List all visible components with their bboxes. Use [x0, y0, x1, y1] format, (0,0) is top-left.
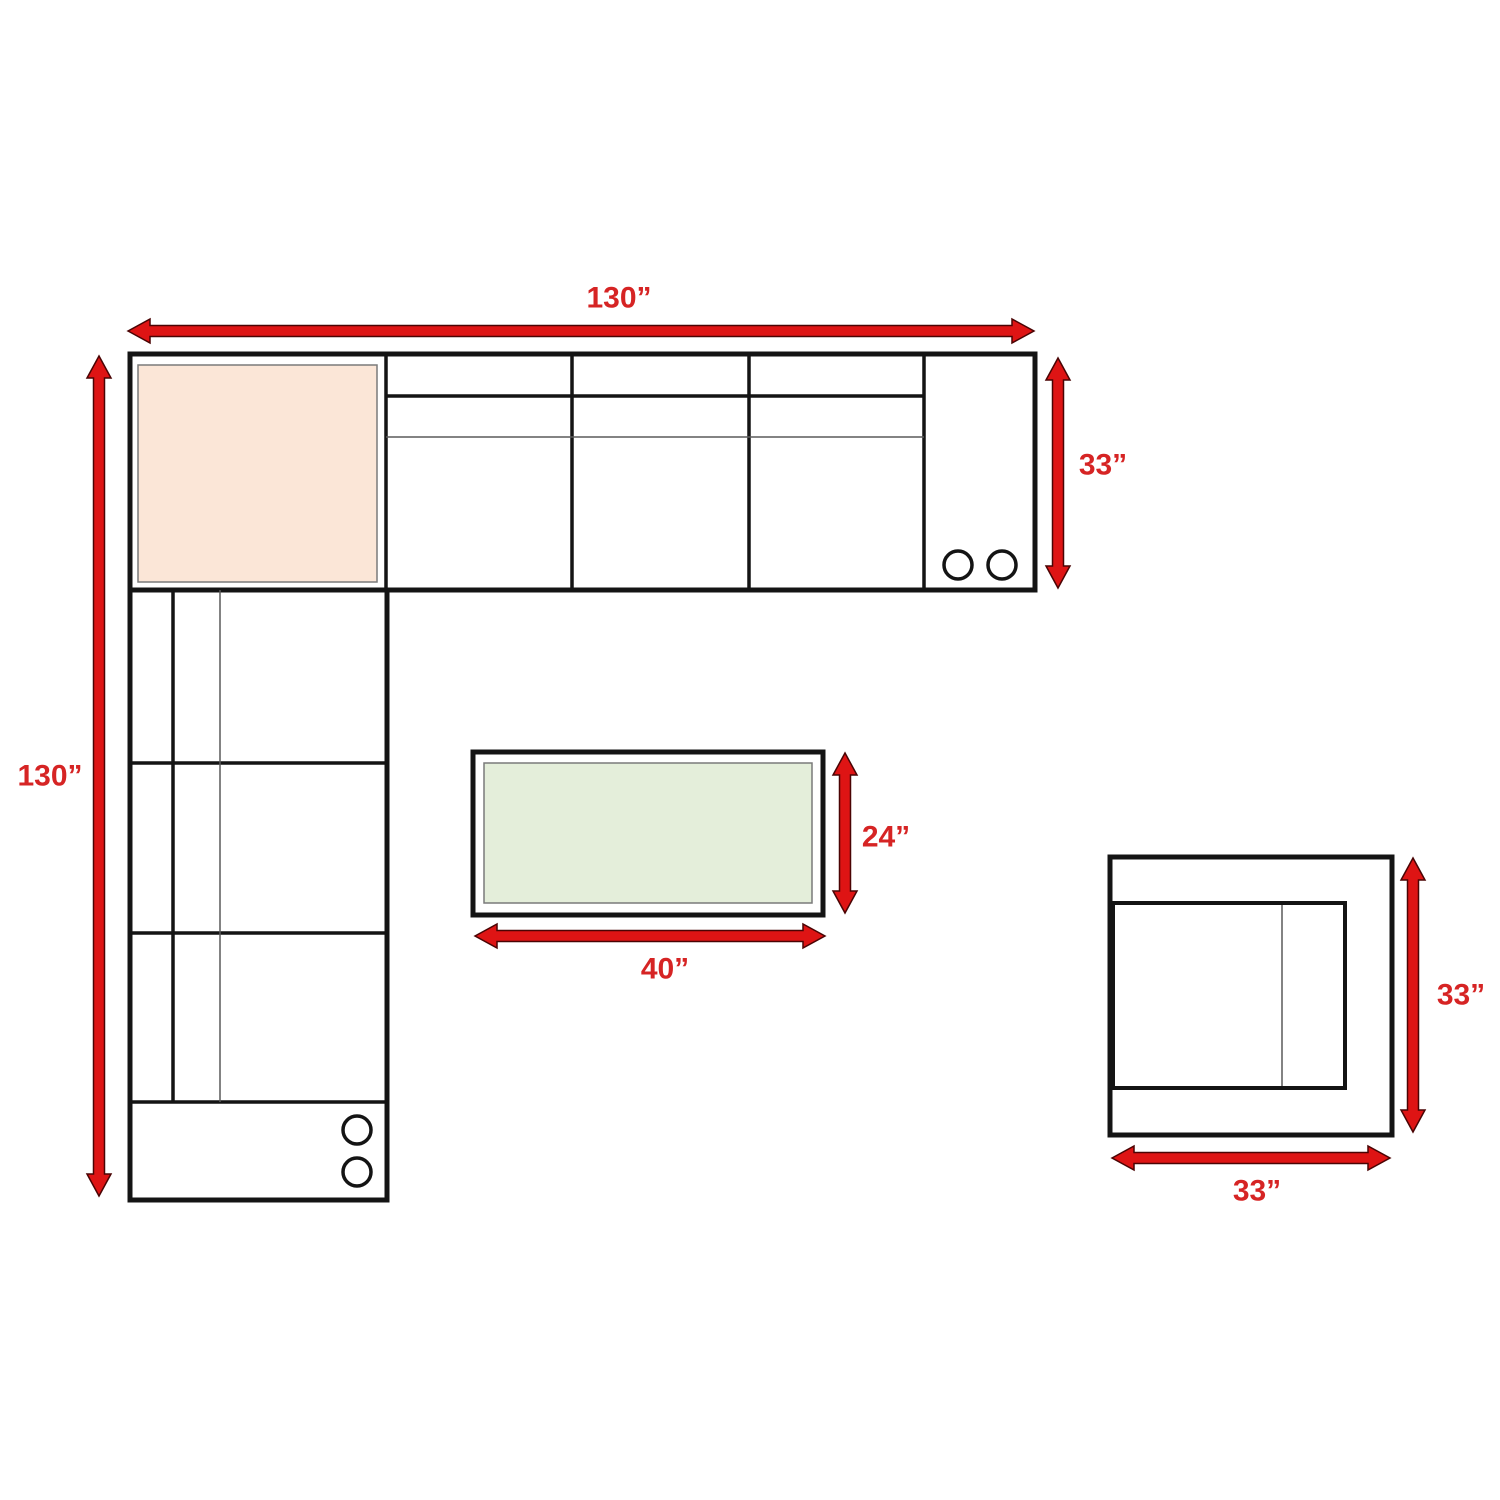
dim-chair-width: 33” [1112, 1146, 1390, 1208]
dimension-arrow-icon [1046, 358, 1070, 588]
sofa-width-label: 130” [586, 282, 651, 315]
cupholder-icon [944, 551, 972, 579]
chair [1110, 857, 1392, 1135]
sectional-corner-piece [138, 365, 377, 582]
chair-width-label: 33” [1233, 1175, 1281, 1208]
coffee-table-top [484, 763, 812, 903]
dimension-arrow-icon [475, 924, 825, 948]
sectional-left-column [130, 590, 387, 1200]
dimension-arrow-icon [87, 356, 111, 1196]
dim-table-depth: 24” [833, 753, 910, 913]
cupholder-icon [343, 1116, 371, 1144]
dim-sofa-width: 130” [128, 282, 1034, 344]
cupholder-icon [988, 551, 1016, 579]
sofa-height-label: 130” [17, 760, 82, 793]
dimension-arrow-icon [1401, 858, 1425, 1132]
dimension-arrow-icon [128, 319, 1034, 343]
dim-table-width: 40” [475, 924, 825, 986]
table-width-label: 40” [641, 953, 689, 986]
dim-sofa-depth: 33” [1046, 358, 1127, 588]
furniture-dimension-diagram: 130” 130” 33” 24” 40” 33” 33” [0, 0, 1500, 1500]
dim-sofa-height: 130” [17, 356, 111, 1196]
dimension-arrow-icon [1112, 1146, 1390, 1170]
cupholder-icon [343, 1158, 371, 1186]
chair-height-label: 33” [1437, 979, 1485, 1012]
chair-seat [1113, 903, 1345, 1088]
coffee-table [473, 752, 823, 915]
dim-chair-height: 33” [1401, 858, 1485, 1132]
table-depth-label: 24” [862, 821, 910, 854]
sofa-depth-label: 33” [1079, 449, 1127, 482]
dimension-arrow-icon [833, 753, 857, 913]
